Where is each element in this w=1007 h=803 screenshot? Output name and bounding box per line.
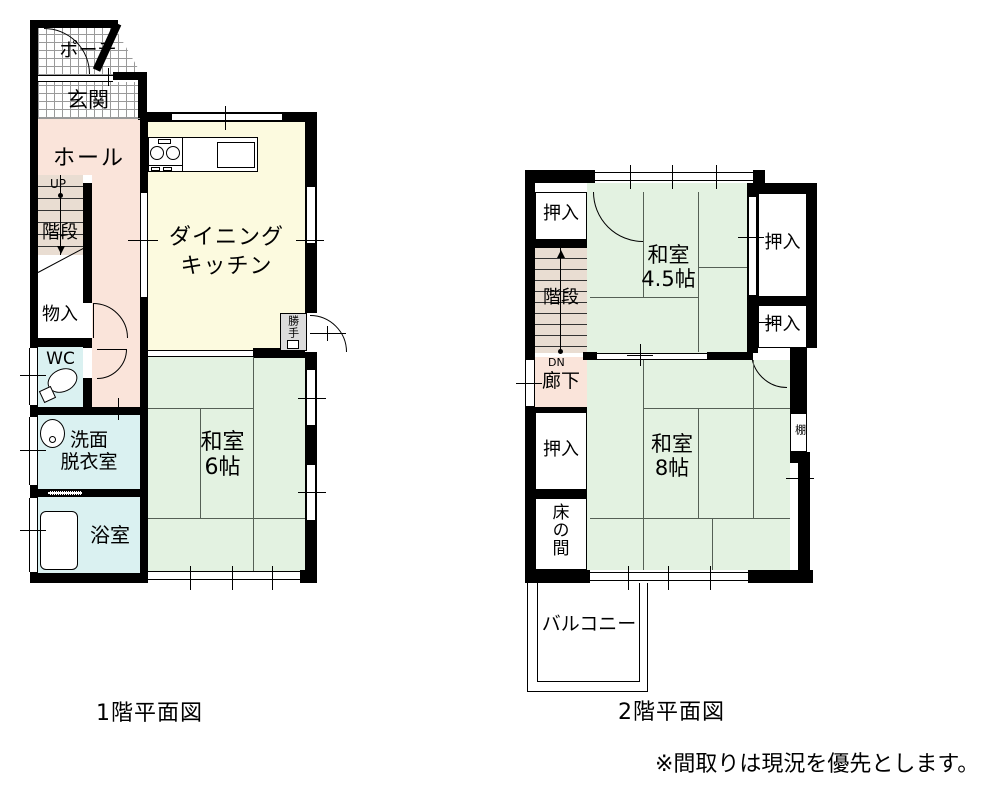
- tatami-line: [712, 518, 713, 570]
- wall-segment: [790, 348, 807, 413]
- washitsu45-door-arc: [593, 192, 643, 242]
- dn-arrow-head: [557, 250, 565, 258]
- wall-segment: [535, 240, 587, 248]
- floor2-caption: 2階平面図: [618, 700, 725, 725]
- tatami-line: [590, 297, 698, 298]
- wall-segment: [527, 490, 587, 498]
- washitsu8-door-arc: [751, 352, 787, 388]
- washitsu45-label: 和室 4.5帖: [590, 243, 747, 291]
- dn-label: DN: [548, 357, 565, 370]
- closet-r1-sliding-door: [748, 197, 757, 295]
- tatami-line: [590, 518, 790, 519]
- closet-top-left-label: 押入: [535, 204, 587, 225]
- closet-left-label: 押入: [535, 440, 587, 461]
- tokonoma-label: 床の間: [548, 503, 568, 557]
- wall-segment: [707, 352, 753, 360]
- hallway-label: 廊下: [533, 371, 589, 393]
- dim-tick: [627, 355, 653, 356]
- closet-right-1-label: 押入: [758, 233, 807, 254]
- wall-segment: [790, 452, 810, 463]
- dim-tick: [786, 478, 814, 479]
- dim-tick: [668, 566, 669, 590]
- dim-tick: [710, 566, 711, 590]
- floor2-plan: バルコニー 押入 階段 DN 廊下 押入 床の間 押入 押入 棚 和室 4.5帖…: [0, 0, 1007, 803]
- washitsu45-top-window: [595, 172, 753, 181]
- wall-segment: [798, 463, 810, 583]
- wall-segment: [527, 570, 590, 583]
- washitsu8-label: 和室 8帖: [592, 432, 752, 480]
- dim-tick: [716, 165, 717, 189]
- floorplan-canvas: 勝手 ポーチ 玄関 ホール UP: [0, 0, 1007, 803]
- wall-segment: [583, 352, 597, 360]
- tatami-line: [753, 360, 754, 518]
- wall-segment: [807, 297, 817, 348]
- closet-right-2-label: 押入: [758, 315, 807, 336]
- balcony-label: バルコニー: [536, 614, 642, 636]
- wall-segment: [525, 170, 595, 183]
- dim-tick: [630, 165, 631, 189]
- dim-tick: [672, 165, 673, 189]
- washitsu8-bottom-window: [590, 572, 748, 581]
- wall-segment: [807, 183, 817, 305]
- tatami-line: [643, 408, 790, 409]
- shelf-label: 棚: [793, 424, 806, 436]
- disclaimer-note: ※間取りは現況を優先とします。: [655, 752, 979, 777]
- stairs-label-2f: 階段: [533, 288, 589, 309]
